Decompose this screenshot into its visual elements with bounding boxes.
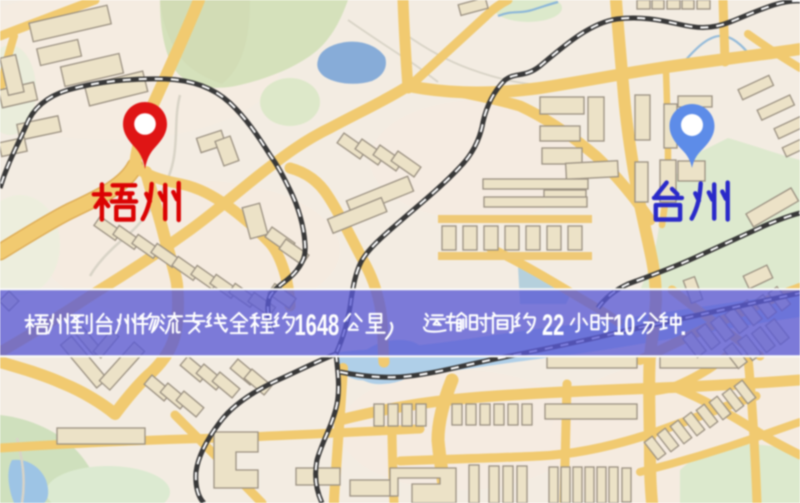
svg-text:22: 22 [542,309,564,342]
svg-text:1648: 1648 [295,309,340,342]
svg-text:10: 10 [613,309,635,342]
svg-text:.: . [680,314,687,341]
